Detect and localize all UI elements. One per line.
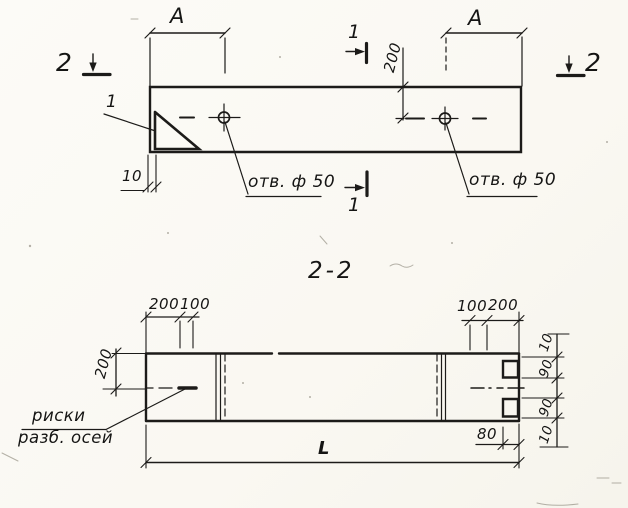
section-mark-1-top [346,44,367,63]
drawing-sheet: A A 1 1 2 2 1 200 10 отв. ф 50 отв. ф 50… [0,0,628,508]
dim-right-200-label: 200 [488,298,518,313]
dim-length-lines [141,424,524,468]
dim-80-label: 80 [477,427,497,442]
hole-label-right: отв. ф 50 [469,172,556,189]
axis-label-line2: разб. осей [18,430,113,447]
axis-marks-right [437,354,446,420]
section-view-title: 2-2 [308,260,355,283]
dim-length-label: L [318,440,330,458]
dim-a-right-label: A [468,8,483,29]
section-view-beam-outline [146,354,519,422]
axis-marks-left [216,354,225,420]
dim-left-200-label: 200 [149,297,179,312]
section-2-left-label: 2 [56,50,72,75]
dim-left-100-label: 100 [180,297,210,312]
dim-a-left-label: A [170,6,185,27]
detail-callout-leader [104,114,154,131]
top-view-beam-outline [150,87,521,152]
section-1-top-label: 1 [348,23,361,42]
notch-top [503,361,518,378]
detail-callout-label: 1 [106,94,117,111]
section-mark-2-left [84,54,111,75]
hole-left [180,104,240,131]
dim-a-left-lines [145,28,230,86]
dim-100-200-right-lines [462,312,524,352]
section-mark-1-bottom [345,172,367,196]
section-mark-2-right [558,56,585,76]
axis-label-line1: риски [32,408,85,425]
section-2-right-label: 2 [585,50,601,75]
notch-bottom [503,399,518,417]
section-1-bottom-label: 1 [348,196,361,215]
dim-right-100-label: 100 [457,299,487,314]
dim-a-right-lines [441,28,527,86]
hole-right [406,107,486,130]
hole-label-left: отв. ф 50 [248,174,335,191]
dim-10-label: 10 [122,169,142,184]
dim-200-100-left-lines [141,312,199,352]
